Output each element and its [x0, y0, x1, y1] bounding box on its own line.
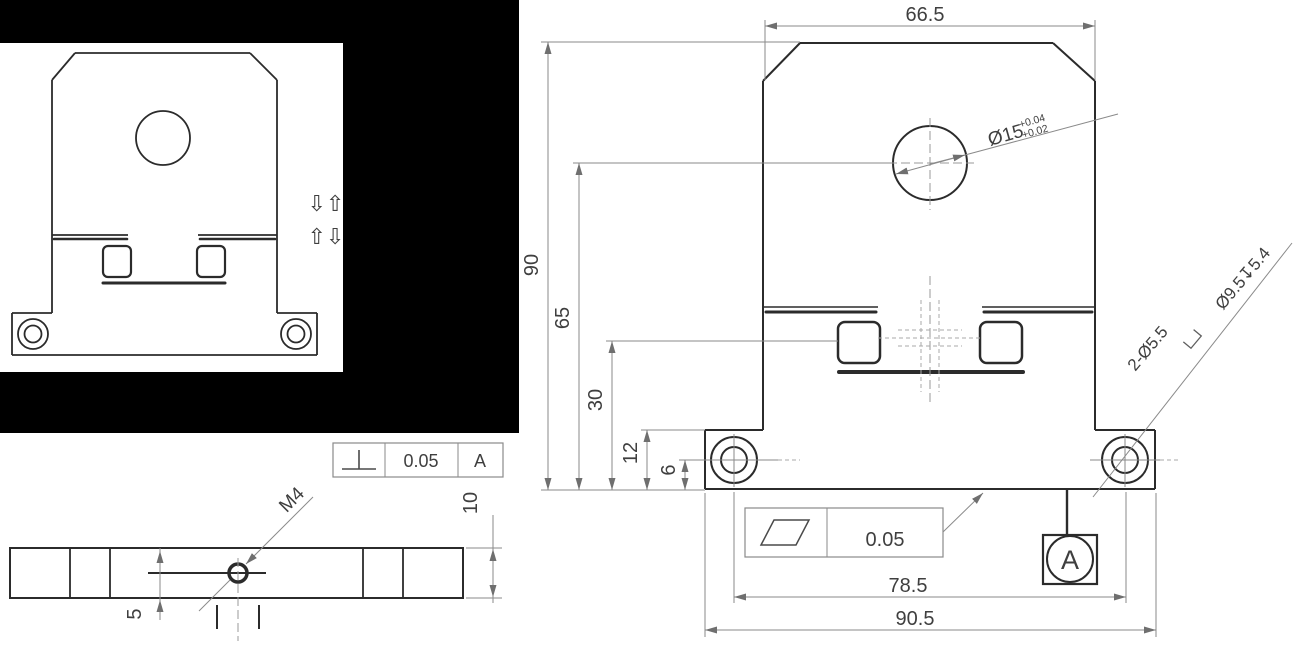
perpendicularity-frame: 0.05 A [333, 443, 503, 477]
svg-text:10: 10 [460, 492, 482, 514]
svg-text:6: 6 [658, 464, 680, 475]
dim-10: 10 [460, 492, 502, 603]
dim-90: 90 [521, 42, 800, 490]
svg-text:12: 12 [620, 442, 642, 464]
center-hole-callout: Ø15 +0.04 +0.02 [896, 112, 1118, 174]
side-view: M4 5 10 0.05 A [10, 443, 503, 641]
current-direction-arrows-icon: ⇩⇧ [308, 191, 345, 216]
svg-text:5: 5 [124, 608, 146, 619]
svg-text:0.05: 0.05 [403, 451, 438, 471]
mount-hole-callout: 2-Ø5.5 Ø9.5↧5.4 [1093, 243, 1292, 497]
engineering-drawing-sheet: ⇩⇧ ⇧⇩ [0, 0, 1297, 653]
datum-a-symbol: A [1043, 490, 1097, 584]
current-direction-arrows-icon: ⇧⇩ [308, 224, 345, 249]
svg-text:66.5: 66.5 [906, 4, 945, 26]
dim-5: 5 [124, 548, 160, 620]
svg-text:A: A [474, 451, 486, 471]
side-outline [10, 548, 463, 629]
svg-text:90: 90 [521, 254, 543, 276]
svg-text:90.5: 90.5 [896, 608, 935, 630]
dim-6: 6 [658, 460, 685, 490]
main-outline [705, 43, 1155, 489]
svg-text:0.05: 0.05 [866, 529, 905, 551]
svg-text:65: 65 [552, 307, 574, 329]
counterbore-icon [1183, 330, 1201, 349]
svg-text:30: 30 [585, 389, 607, 411]
svg-text:78.5: 78.5 [889, 575, 928, 597]
svg-text:M4: M4 [275, 483, 309, 517]
svg-text:2-Ø5.5: 2-Ø5.5 [1124, 322, 1172, 374]
svg-text:A: A [1061, 545, 1079, 575]
terminal-left [838, 322, 880, 363]
centerlines [679, 118, 1180, 487]
terminal-right [980, 322, 1022, 363]
dimensions: 66.5 90 65 30 12 [521, 4, 1292, 637]
flatness-frame: 0.05 [745, 493, 983, 557]
main-front-view: 66.5 90 65 30 12 [521, 4, 1292, 637]
drawing-svg: ⇩⇧ ⇧⇩ [0, 0, 1297, 653]
